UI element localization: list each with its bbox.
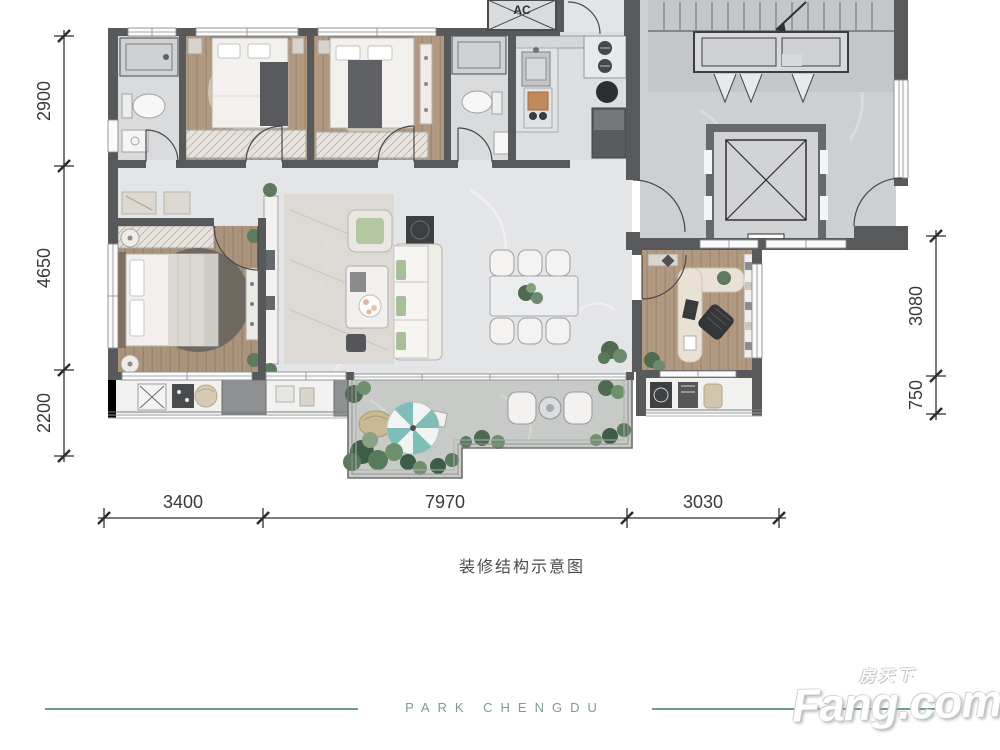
dim-label: 2200 xyxy=(34,393,54,433)
ac-label: AC xyxy=(513,3,531,17)
plan-caption: 装修结构示意图 xyxy=(459,557,585,576)
brand-divider-left xyxy=(45,708,358,710)
dim-label: 3080 xyxy=(906,286,926,326)
dim-label: 4650 xyxy=(34,248,54,288)
floor-plan-svg: AC 2900 4650 2200 3080 750 3400 7970 303… xyxy=(0,0,1000,600)
dim-label: 3400 xyxy=(163,492,203,512)
fang-watermark: 房天下 Fang.com xyxy=(791,661,998,750)
balcony-right xyxy=(650,382,722,408)
dim-label: 7970 xyxy=(425,492,465,512)
fang-logo-en: Fang.com xyxy=(791,673,1000,732)
dimension-bottom: 3400 7970 3030 xyxy=(98,492,786,528)
brand-text: PARK CHENGDU xyxy=(362,700,648,715)
screenshot-root: AC 2900 4650 2200 3080 750 3400 7970 303… xyxy=(0,0,1000,750)
dim-label: 2900 xyxy=(34,81,54,121)
elevator xyxy=(704,124,828,246)
dim-label: 750 xyxy=(906,380,926,410)
dim-label: 3030 xyxy=(683,492,723,512)
dimension-left: 2900 4650 2200 xyxy=(34,30,74,462)
dimension-right: 3080 750 xyxy=(906,230,946,420)
ac-unit: AC xyxy=(488,0,556,30)
hallway xyxy=(122,192,190,214)
